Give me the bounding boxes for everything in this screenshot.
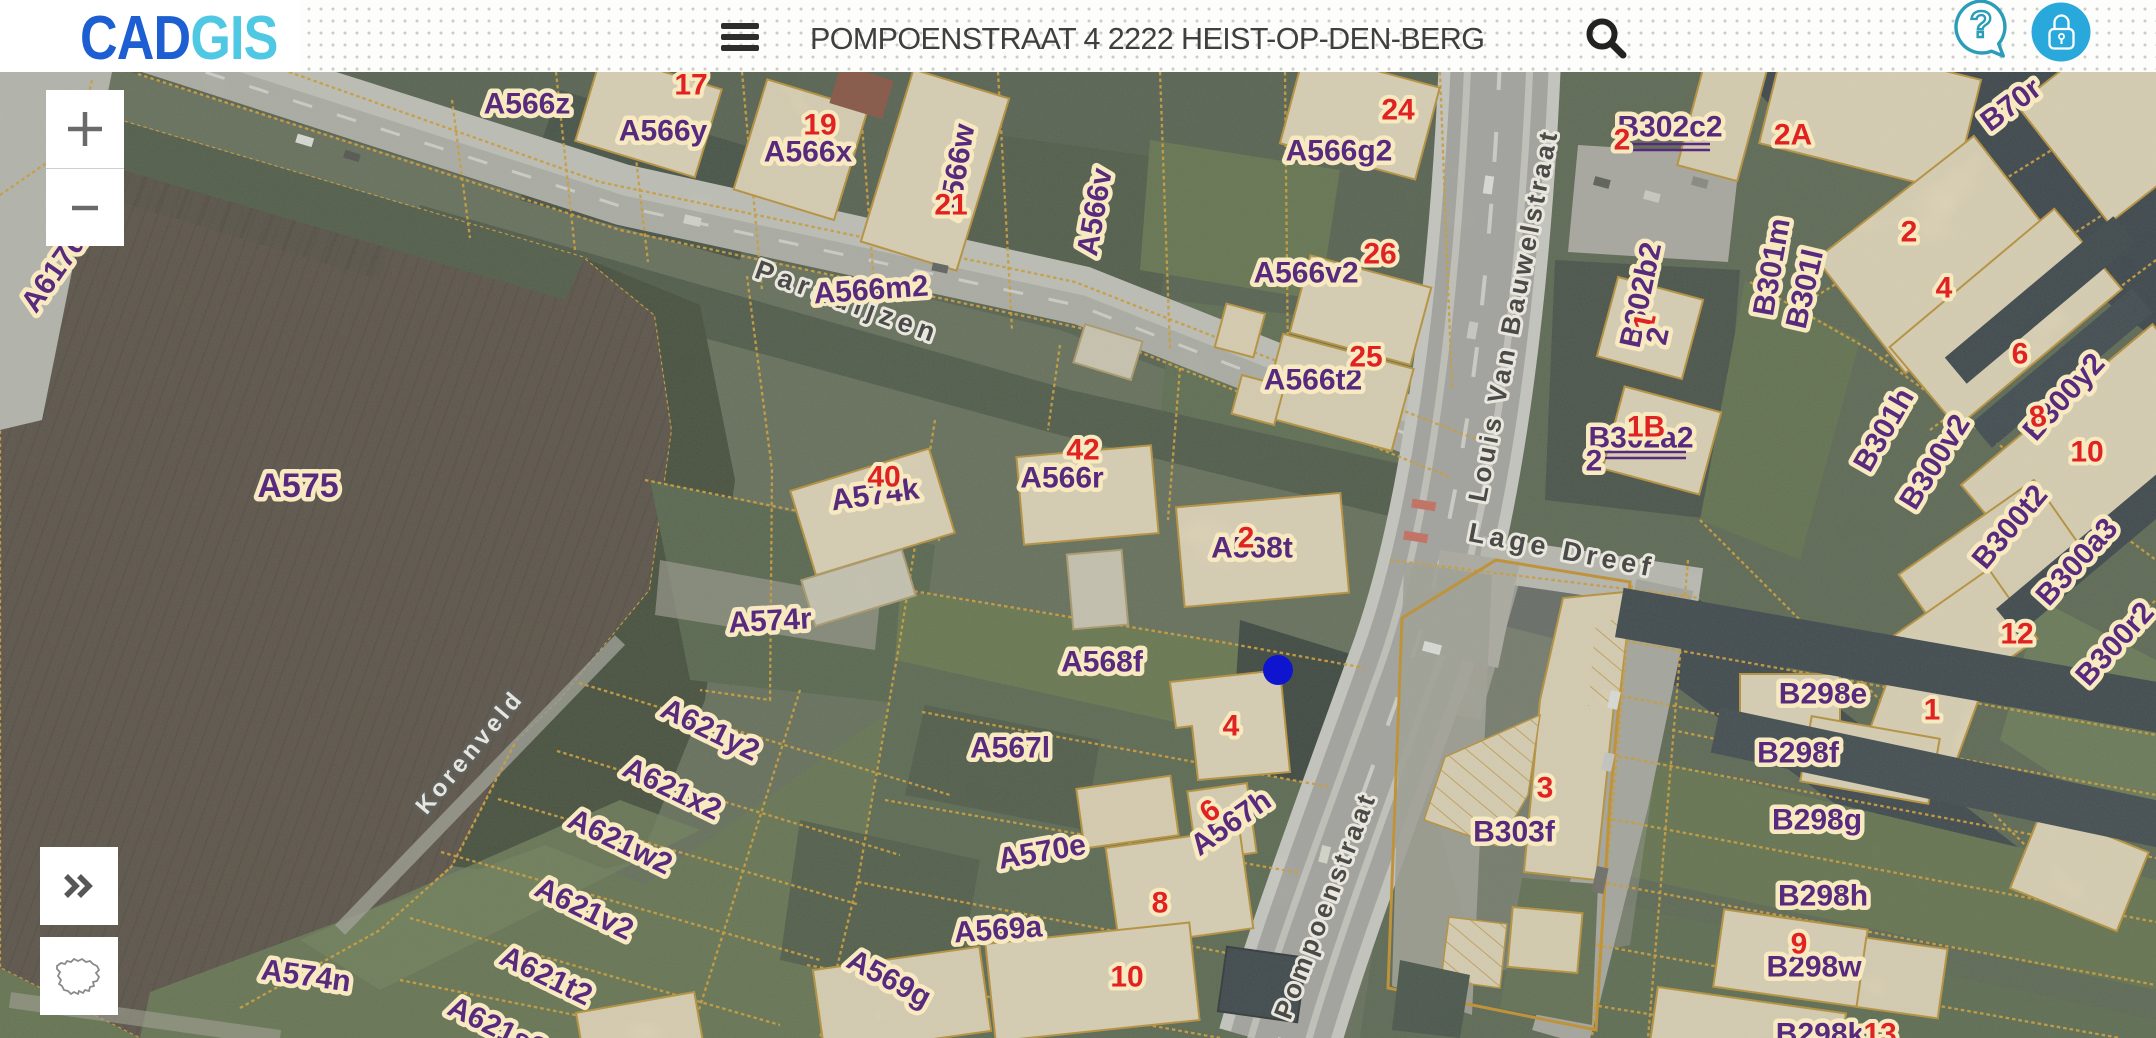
svg-text:A566v2: A566v2 bbox=[1253, 257, 1358, 290]
svg-text:12: 12 bbox=[2000, 618, 2033, 651]
svg-text:A569a: A569a bbox=[953, 910, 1044, 949]
svg-text:2: 2 bbox=[1901, 216, 1918, 249]
svg-text:26: 26 bbox=[1363, 238, 1396, 271]
svg-text:2: 2 bbox=[1614, 124, 1631, 157]
svg-text:2: 2 bbox=[1586, 445, 1603, 478]
svg-text:B298h: B298h bbox=[1778, 880, 1868, 913]
svg-text:24: 24 bbox=[1381, 94, 1415, 127]
svg-text:10: 10 bbox=[1110, 961, 1143, 994]
svg-text:1B: 1B bbox=[1627, 411, 1665, 444]
svg-text:B298g: B298g bbox=[1772, 804, 1862, 837]
svg-text:8: 8 bbox=[1152, 887, 1169, 920]
svg-text:A566z: A566z bbox=[484, 88, 571, 121]
svg-text:1: 1 bbox=[1924, 694, 1941, 727]
svg-text:2: 2 bbox=[1238, 522, 1255, 555]
svg-text:40: 40 bbox=[867, 461, 900, 494]
svg-text:13: 13 bbox=[1863, 1018, 1896, 1038]
svg-text:17: 17 bbox=[674, 69, 707, 102]
svg-text:10: 10 bbox=[2070, 436, 2103, 469]
svg-text:B303f: B303f bbox=[1473, 816, 1556, 849]
svg-text:19: 19 bbox=[803, 109, 836, 142]
svg-text:6: 6 bbox=[2012, 338, 2029, 371]
svg-text:A566t2: A566t2 bbox=[1264, 364, 1362, 397]
svg-text:A566y: A566y bbox=[619, 115, 708, 148]
svg-text:25: 25 bbox=[1349, 341, 1382, 374]
svg-text:A567l: A567l bbox=[970, 732, 1050, 765]
svg-text:?: ? bbox=[1970, 4, 1993, 45]
svg-text:B298k: B298k bbox=[1776, 1018, 1865, 1038]
svg-text:A575: A575 bbox=[257, 467, 338, 505]
svg-text:B298e: B298e bbox=[1779, 678, 1867, 711]
svg-text:B298w: B298w bbox=[1766, 951, 1862, 984]
svg-text:A574r: A574r bbox=[727, 602, 812, 639]
svg-text:B302c2: B302c2 bbox=[1617, 111, 1722, 144]
svg-text:9: 9 bbox=[1791, 928, 1808, 961]
svg-text:21: 21 bbox=[934, 189, 967, 222]
svg-text:B298f: B298f bbox=[1757, 737, 1840, 770]
svg-text:4: 4 bbox=[1936, 272, 1953, 305]
svg-text:2A: 2A bbox=[1774, 119, 1812, 152]
svg-text:4: 4 bbox=[1223, 710, 1240, 743]
svg-text:42: 42 bbox=[1066, 434, 1099, 467]
svg-text:A566g2: A566g2 bbox=[1286, 135, 1393, 168]
svg-text:3: 3 bbox=[1537, 772, 1554, 805]
svg-text:A568f: A568f bbox=[1061, 646, 1144, 679]
